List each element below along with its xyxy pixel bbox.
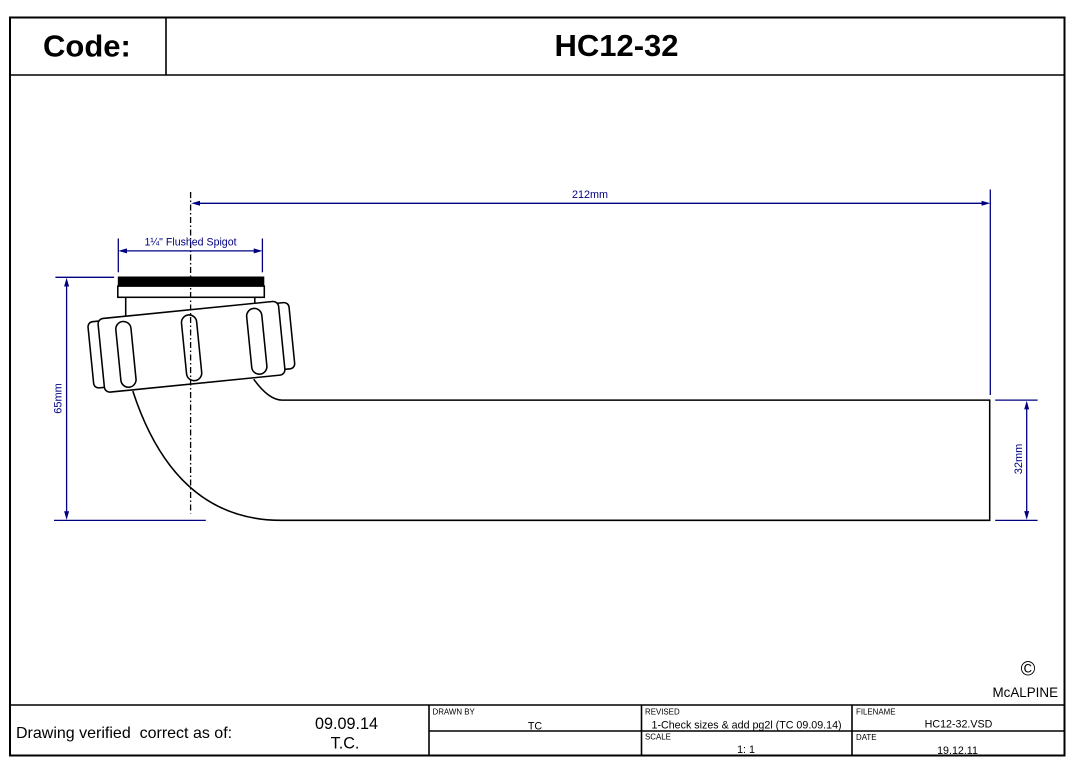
svg-text:TC: TC xyxy=(528,721,543,733)
svg-text:HC12-32.VSD: HC12-32.VSD xyxy=(925,719,993,731)
svg-text:HC12-32: HC12-32 xyxy=(554,28,678,63)
svg-text:©: © xyxy=(1021,659,1036,681)
svg-text:19.12.11: 19.12.11 xyxy=(937,745,978,757)
svg-text:Drawing verified correct as o: Drawing verified correct as of: xyxy=(16,725,232,742)
svg-text:09.09.14: 09.09.14 xyxy=(315,715,378,733)
svg-text:212mm: 212mm xyxy=(572,189,608,201)
svg-text:DRAWN BY: DRAWN BY xyxy=(433,708,476,717)
svg-text:65mm: 65mm xyxy=(52,383,64,414)
svg-text:REVISED: REVISED xyxy=(645,708,680,717)
svg-text:Code:: Code: xyxy=(43,29,131,64)
svg-text:T.C.: T.C. xyxy=(331,735,360,753)
svg-text:32mm: 32mm xyxy=(1013,444,1025,475)
svg-text:1: 1: 1: 1 xyxy=(737,744,755,756)
svg-text:1-Check sizes & add pg2l (TC 0: 1-Check sizes & add pg2l (TC 09.09.14) xyxy=(652,720,842,732)
svg-text:1¼" Flushed Spigot: 1¼" Flushed Spigot xyxy=(144,236,236,248)
svg-text:McALPINE: McALPINE xyxy=(993,685,1059,700)
svg-text:SCALE: SCALE xyxy=(645,733,671,742)
svg-text:DATE: DATE xyxy=(856,733,876,742)
svg-text:FILENAME: FILENAME xyxy=(856,708,895,717)
